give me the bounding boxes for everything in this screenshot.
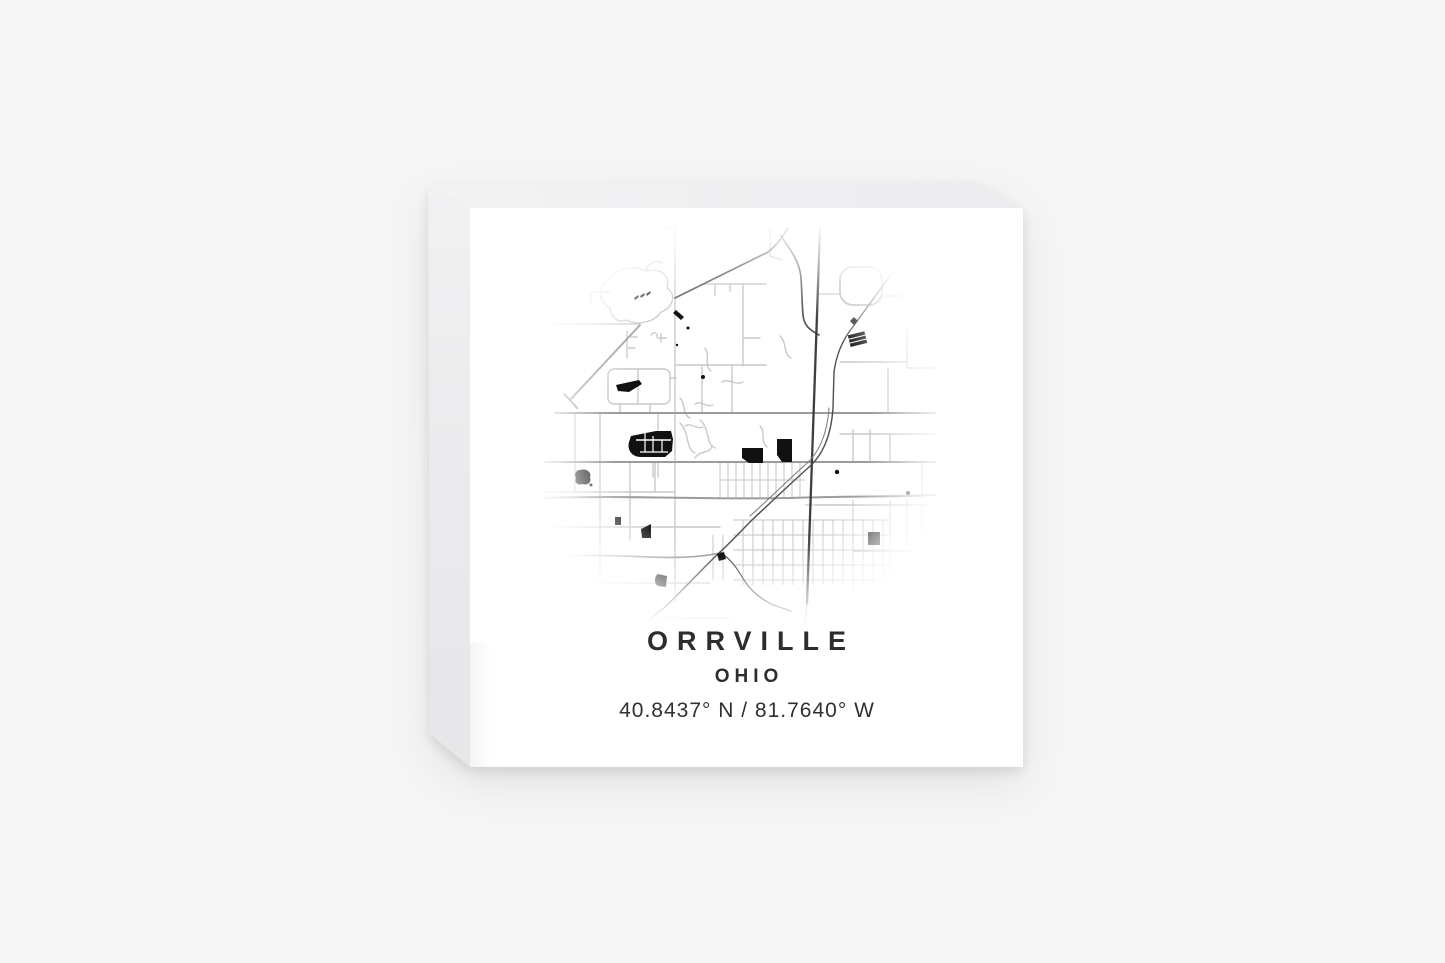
- block-front-face: ORRVILLE OHIO 40.8437° N / 81.7640° W: [470, 208, 1023, 767]
- city-map: [470, 208, 1023, 643]
- city-name: ORRVILLE: [470, 628, 1023, 655]
- photo-background: ORRVILLE OHIO 40.8437° N / 81.7640° W: [0, 0, 1445, 963]
- state-name: OHIO: [470, 667, 1023, 686]
- print-caption: ORRVILLE OHIO 40.8437° N / 81.7640° W: [470, 628, 1023, 721]
- coordinates-text: 40.8437° N / 81.7640° W: [470, 700, 1023, 721]
- map-print-block: ORRVILLE OHIO 40.8437° N / 81.7640° W: [424, 178, 1026, 770]
- map-edge-fade: [470, 208, 1023, 643]
